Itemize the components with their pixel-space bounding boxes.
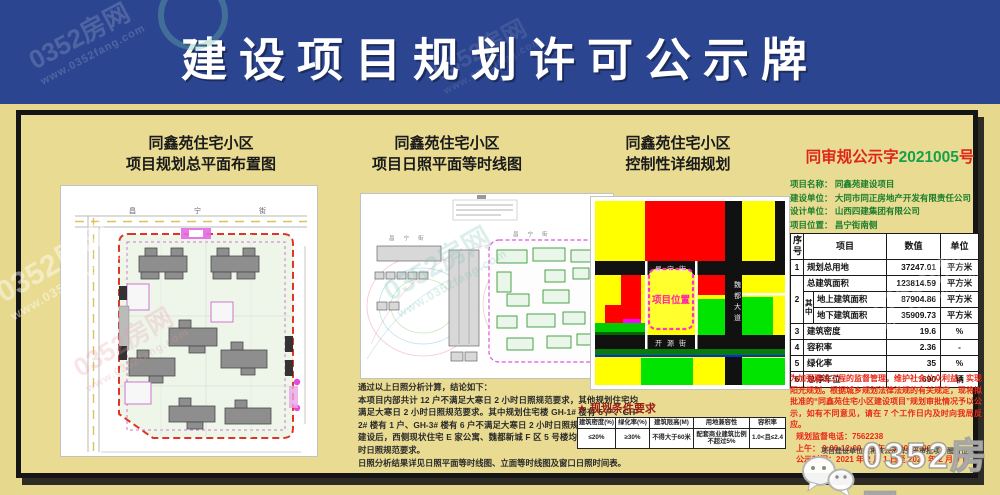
location-line: 项目位置： 昌宁街南侧	[790, 219, 985, 233]
zoning-map-image: 项目位置 昌宁街 开源街 魏都大道	[590, 196, 790, 390]
sunshine-image: 昌宁街 昌宁街	[360, 193, 614, 379]
table-row: 地下建筑面积 35909.73 平方米	[791, 307, 979, 323]
project-name-line: 项目名称： 同鑫苑建设项目	[790, 178, 985, 192]
notice-body: 为加强建设工程的监督管理，维护社会公众利益，实现阳光规划。根据城乡规划法律法规的…	[790, 373, 982, 431]
builder-line: 建设单位： 大同市同正房地产开发有限责任公司	[790, 192, 985, 206]
phone-line: 规划监督电话：7562238	[796, 431, 982, 443]
conditions-table: 建筑密度(%) 绿化率(%) 建筑限高(M) 用地兼容性 容积率 ≤20% ≥3…	[577, 417, 786, 449]
street-label: 昌宁街	[513, 230, 557, 238]
street-label: 昌宁街	[655, 265, 691, 274]
zoning-title: 同鑫苑住宅小区 控制性详细规划	[578, 133, 778, 175]
street-label: 开源街	[655, 339, 691, 348]
table-row: 2 总建筑面积 123814.59 平方米	[791, 275, 979, 291]
table-row: 4 容积率 2.36 -	[791, 339, 979, 355]
designer-line: 设计单位： 山西四建集团有限公司	[790, 205, 985, 219]
street-label: 昌宁街	[129, 206, 317, 215]
header-banner: 建设项目规划许可公示牌	[0, 0, 1000, 104]
sunshine-title: 同鑫苑住宅小区 项目日照平面等时线图	[347, 133, 547, 175]
table-row: 其中 地上建筑面积 87904.86 平方米	[791, 291, 979, 307]
table-row: 1 规划总用地 37247.01 平方米	[791, 259, 979, 275]
parcel-label: 项目位置	[652, 294, 691, 306]
site-plan-title: 同鑫苑住宅小区 项目规划总平面布置图	[101, 133, 301, 175]
permit-table: 序号 项目 数值 单位 1 规划总用地 37247.01 平方米 2 总建筑面积…	[790, 233, 979, 388]
street-label: 昌宁街	[389, 234, 433, 242]
street-label: 魏都大道	[734, 280, 742, 325]
notice-board: 同鑫苑住宅小区 项目规划总平面布置图 昌宁街	[16, 110, 978, 478]
conditions-heading: ★ 规划条件要求	[577, 400, 656, 416]
site-plan-image: 昌宁街	[60, 185, 318, 457]
obscured-note: 项目建设单位须将该公示牌立于审批项目醒目位置	[821, 447, 981, 457]
permit-number: 同审规公示字2021005号	[790, 145, 990, 167]
table-row: 3 建筑密度 19.6 %	[791, 323, 979, 339]
project-info: 项目名称： 同鑫苑建设项目 建设单位： 大同市同正房地产开发有限责任公司 设计单…	[790, 178, 985, 232]
table-row: 5 绿化率 35 %	[791, 355, 979, 371]
page-title: 建设项目规划许可公示牌	[0, 24, 1000, 90]
